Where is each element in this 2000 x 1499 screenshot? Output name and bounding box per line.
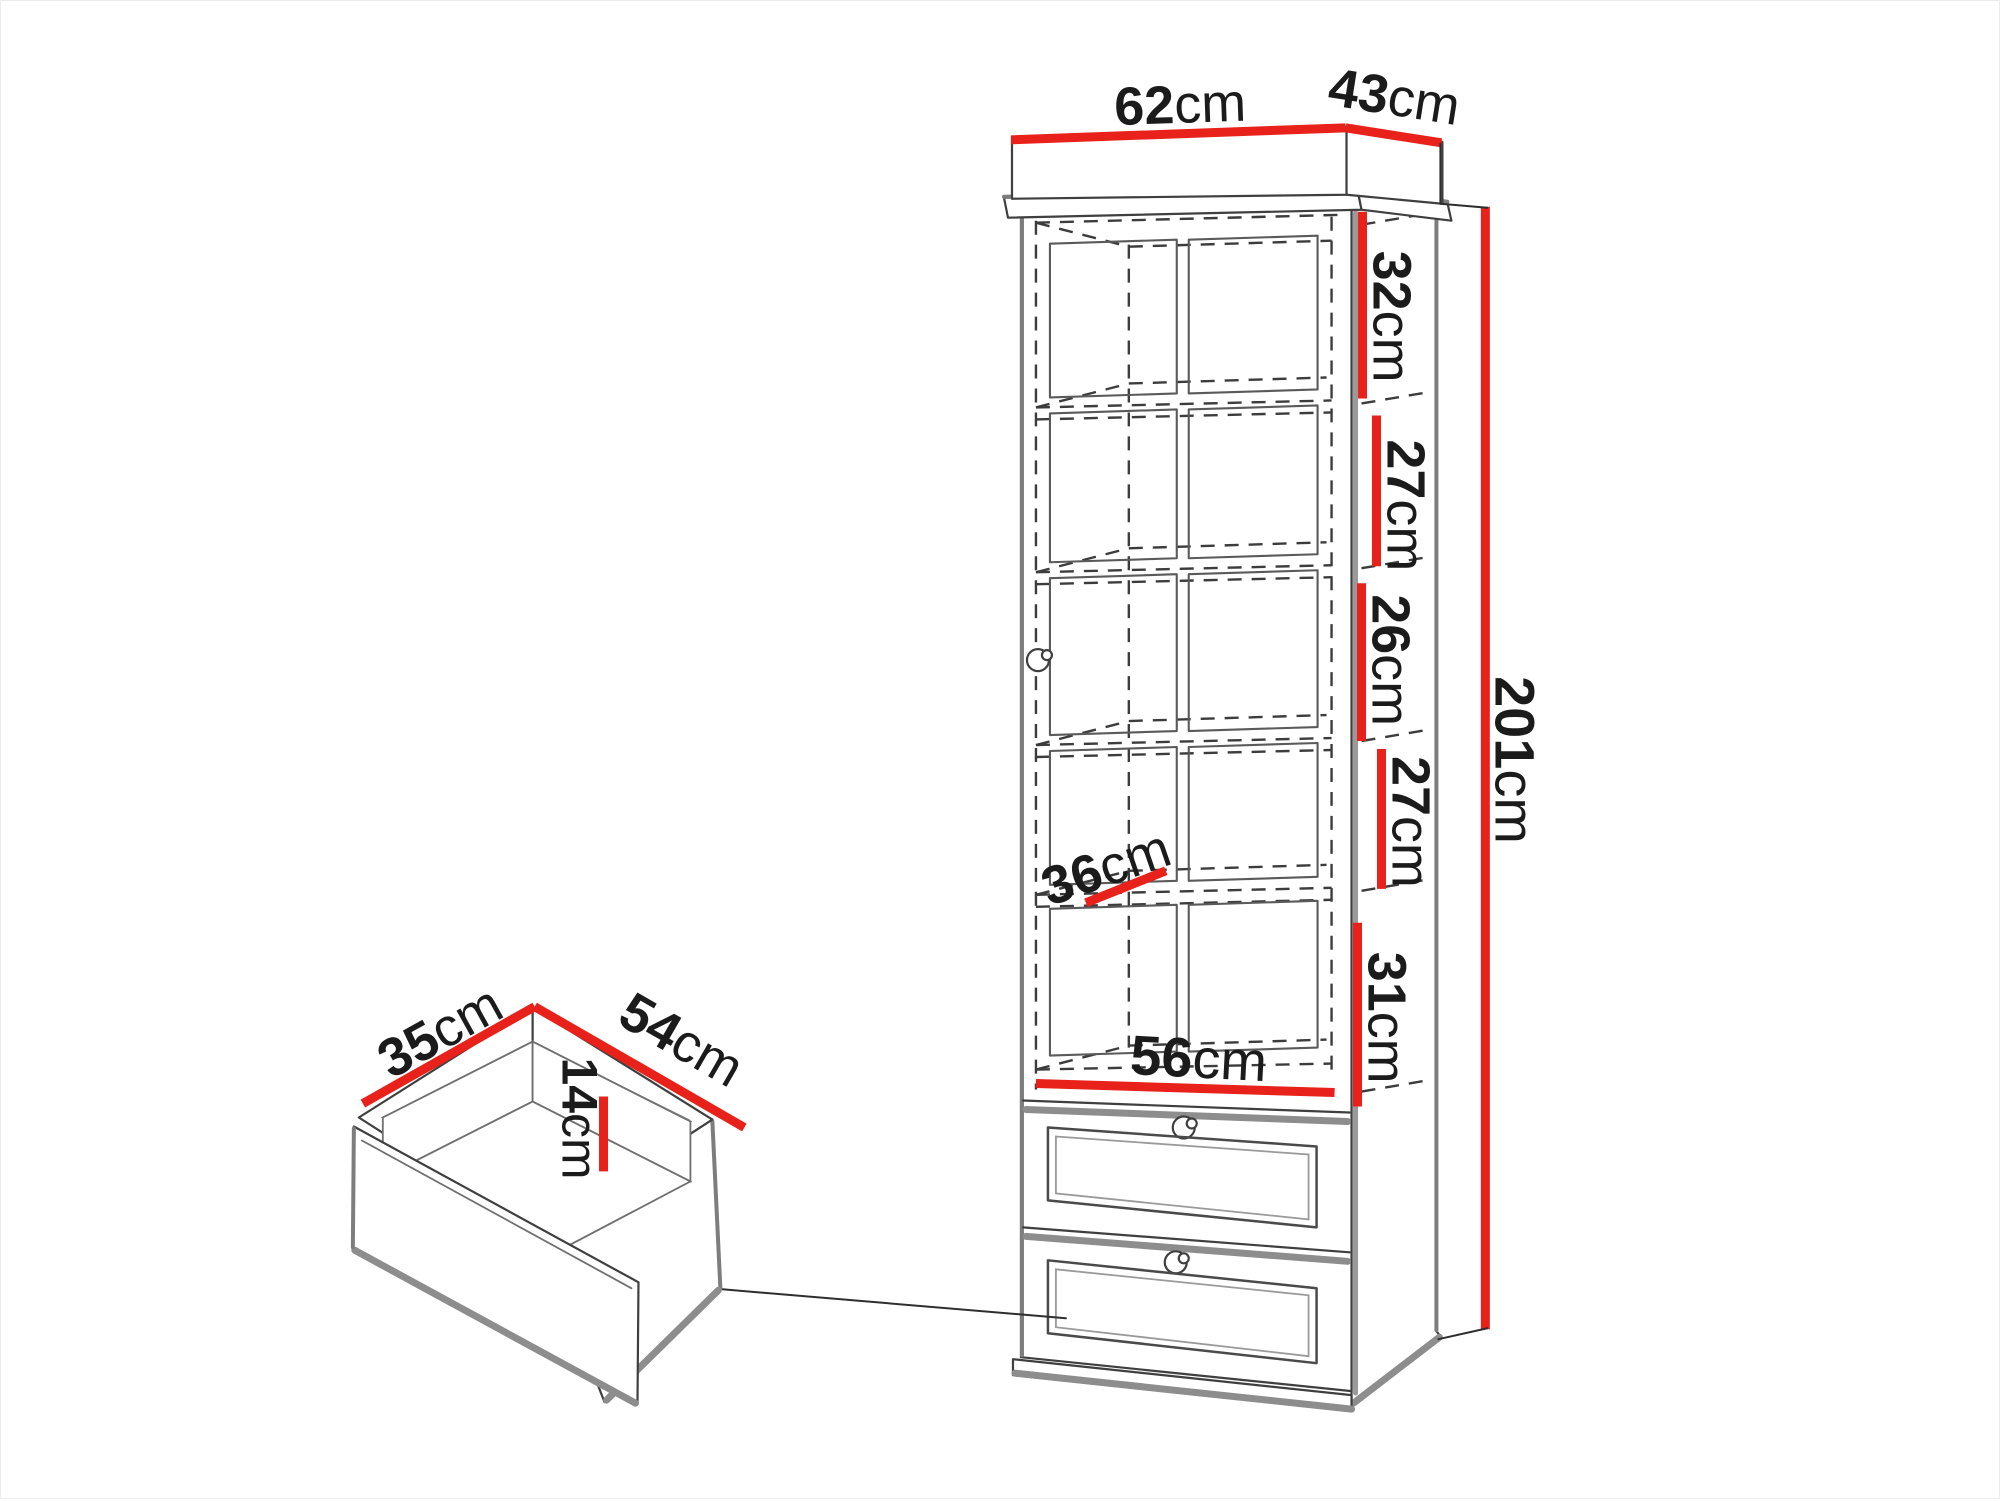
dim-label-drawer-height: 14cm	[552, 1057, 608, 1179]
dim-label-shelf-1: 32cm	[1362, 251, 1422, 383]
dim-label-shelf-3: 26cm	[1361, 594, 1421, 726]
dim-label-shelf-4: 27cm	[1380, 756, 1440, 888]
dim-label-shelf-2: 27cm	[1375, 439, 1435, 571]
dim-label-interior-width: 56cm	[1129, 1023, 1269, 1093]
drawer-leader-line	[722, 1289, 1066, 1318]
furniture-dimension-diagram: 62cm 43cm 201cm 32cm 27cm 26cm 27cm 31cm…	[0, 0, 2000, 1499]
extension-lines	[1438, 144, 1487, 1339]
dim-label-cabinet-width: 62cm	[1113, 73, 1247, 138]
dim-label-cabinet-height: 201cm	[1483, 676, 1546, 844]
diagram-canvas: 62cm 43cm 201cm 32cm 27cm 26cm 27cm 31cm…	[1, 1, 1999, 1498]
dim-label-shelf-5: 31cm	[1357, 952, 1417, 1084]
